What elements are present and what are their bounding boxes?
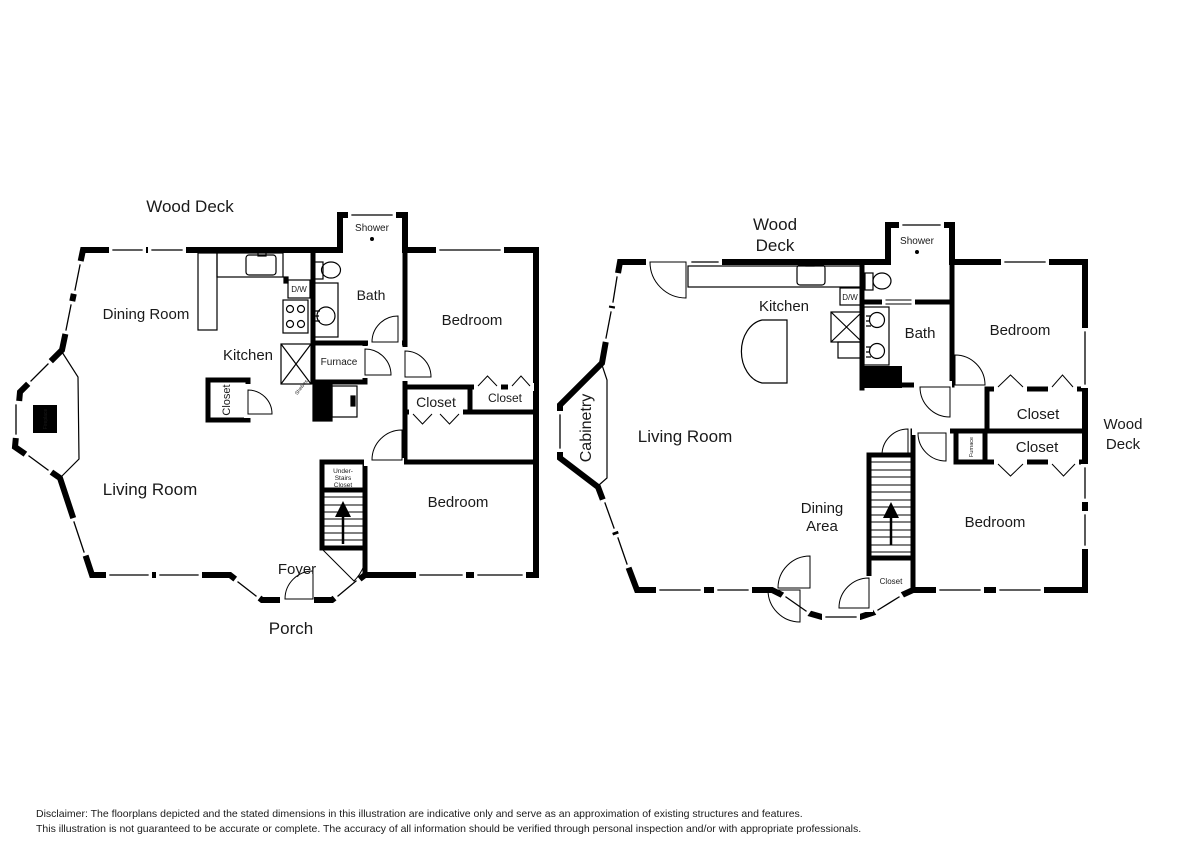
- stove: [283, 300, 308, 333]
- room-label-kitchen: Kitchen: [759, 298, 809, 315]
- burner: [287, 321, 294, 328]
- kitchen-fixtures-first-floor: [198, 251, 311, 384]
- counter: [217, 253, 283, 277]
- deck-right-label-line2: Deck: [1106, 436, 1141, 453]
- walls-second-floor: [560, 225, 1085, 617]
- counter: [198, 253, 217, 330]
- door-arc: [372, 430, 402, 460]
- deck-top-label-line1: Wood: [753, 215, 797, 234]
- deck-top-label-line2: Deck: [756, 236, 795, 255]
- kitchen-island: [741, 320, 787, 383]
- floorplan-page: Fireplace: [0, 0, 1200, 849]
- room-label-bath: Bath: [357, 287, 386, 303]
- door-arc: [372, 316, 398, 342]
- burner: [287, 306, 294, 313]
- kitchen-fixtures-second-floor: [688, 261, 862, 383]
- toilet-tank: [865, 273, 873, 290]
- door-arc: [882, 429, 908, 455]
- counter: [838, 342, 862, 358]
- bath-sink: [870, 313, 885, 328]
- closet-label-hall: Closet: [416, 394, 456, 410]
- deck-label: Wood Deck: [146, 197, 234, 216]
- toilet-bowl: [322, 262, 341, 278]
- understairs-line2: Stairs: [335, 475, 352, 482]
- disclaimer-line2: This illustration is not guaranteed to b…: [36, 823, 861, 835]
- room-label-kitchen: Kitchen: [223, 347, 273, 364]
- room-label-living: Living Room: [638, 427, 733, 446]
- kitchen-sink: [797, 265, 825, 285]
- fireplace-label: Fireplace: [43, 409, 49, 430]
- fixture-label-dw: D/W: [842, 293, 858, 302]
- chimney: [313, 382, 332, 421]
- fixture-label-shelves: Shelves: [294, 378, 310, 396]
- dining-area-line2: Area: [806, 518, 838, 535]
- cabinetry-label: Cabinetry: [578, 394, 595, 462]
- closet-label-1: Closet: [1017, 406, 1060, 423]
- door-arc: [778, 556, 810, 588]
- bath-fixtures-second-floor: [862, 251, 918, 388]
- deck-right-label-line1: Wood: [1104, 416, 1143, 433]
- closet-label-2: Closet: [1016, 439, 1059, 456]
- second-floor-plan: Cabinetry: [560, 215, 1142, 622]
- understairs-line3: Closet: [334, 482, 353, 489]
- counter: [688, 266, 862, 287]
- fixture-label-furnace: Furnace: [321, 357, 358, 368]
- shelves-cross: [831, 312, 862, 342]
- kitchen-sink: [246, 255, 276, 275]
- room-label-porch: Porch: [269, 619, 313, 638]
- first-floor-plan: Fireplace: [15, 197, 536, 638]
- vanity: [313, 283, 338, 337]
- disclaimer-line1: Disclaimer: The floorplans depicted and …: [36, 808, 803, 820]
- burner: [298, 321, 305, 328]
- room-label-foyer: Foyer: [278, 561, 316, 578]
- room-label-bedroom-lower: Bedroom: [428, 494, 489, 511]
- shower-drain: [916, 251, 919, 254]
- room-label-bath: Bath: [905, 325, 936, 342]
- burner: [298, 306, 305, 313]
- dining-area-line1: Dining: [801, 500, 844, 517]
- toilet-bowl: [873, 273, 891, 289]
- shelves-cross: [281, 344, 311, 384]
- chimney: [862, 366, 902, 388]
- bath-sink: [870, 344, 885, 359]
- understairs-line1: Under-: [333, 468, 353, 475]
- shower-drain: [371, 238, 374, 241]
- bath-fixtures-first-floor: [313, 238, 373, 421]
- door-arc: [918, 433, 946, 461]
- closet-label-bedroom: Closet: [488, 391, 523, 405]
- door-arc: [920, 387, 950, 417]
- room-label-bedroom-lower: Bedroom: [965, 514, 1026, 531]
- room-label-shower: Shower: [900, 236, 935, 247]
- door-arc: [839, 578, 869, 608]
- stairs-arrow-head: [883, 502, 899, 518]
- door-arc: [650, 262, 686, 298]
- room-label-living: Living Room: [103, 480, 198, 499]
- room-label-dining: Dining Room: [103, 306, 190, 323]
- fixture-label-dw: D/W: [291, 285, 307, 294]
- door-arc: [955, 355, 985, 385]
- bath-sink: [317, 307, 335, 325]
- room-label-bedroom-upper: Bedroom: [442, 312, 503, 329]
- stairs-arrow-head: [335, 501, 351, 517]
- closet-label-stairs: Closet: [880, 577, 903, 586]
- stairs-second-floor: [869, 462, 913, 552]
- doors-first-floor: [248, 316, 530, 599]
- closet-label-kitchen: Closet: [221, 384, 233, 415]
- fixture-label-furnace: Furnace: [969, 437, 975, 457]
- room-label-shower: Shower: [355, 223, 390, 234]
- stairs-first-floor: [322, 497, 365, 544]
- wall-stub: [284, 277, 288, 283]
- floorplan-canvas: Fireplace: [0, 0, 1200, 849]
- room-label-bedroom-upper: Bedroom: [990, 322, 1051, 339]
- water-heater-detail: [351, 396, 355, 406]
- disclaimer: Disclaimer: The floorplans depicted and …: [36, 808, 861, 835]
